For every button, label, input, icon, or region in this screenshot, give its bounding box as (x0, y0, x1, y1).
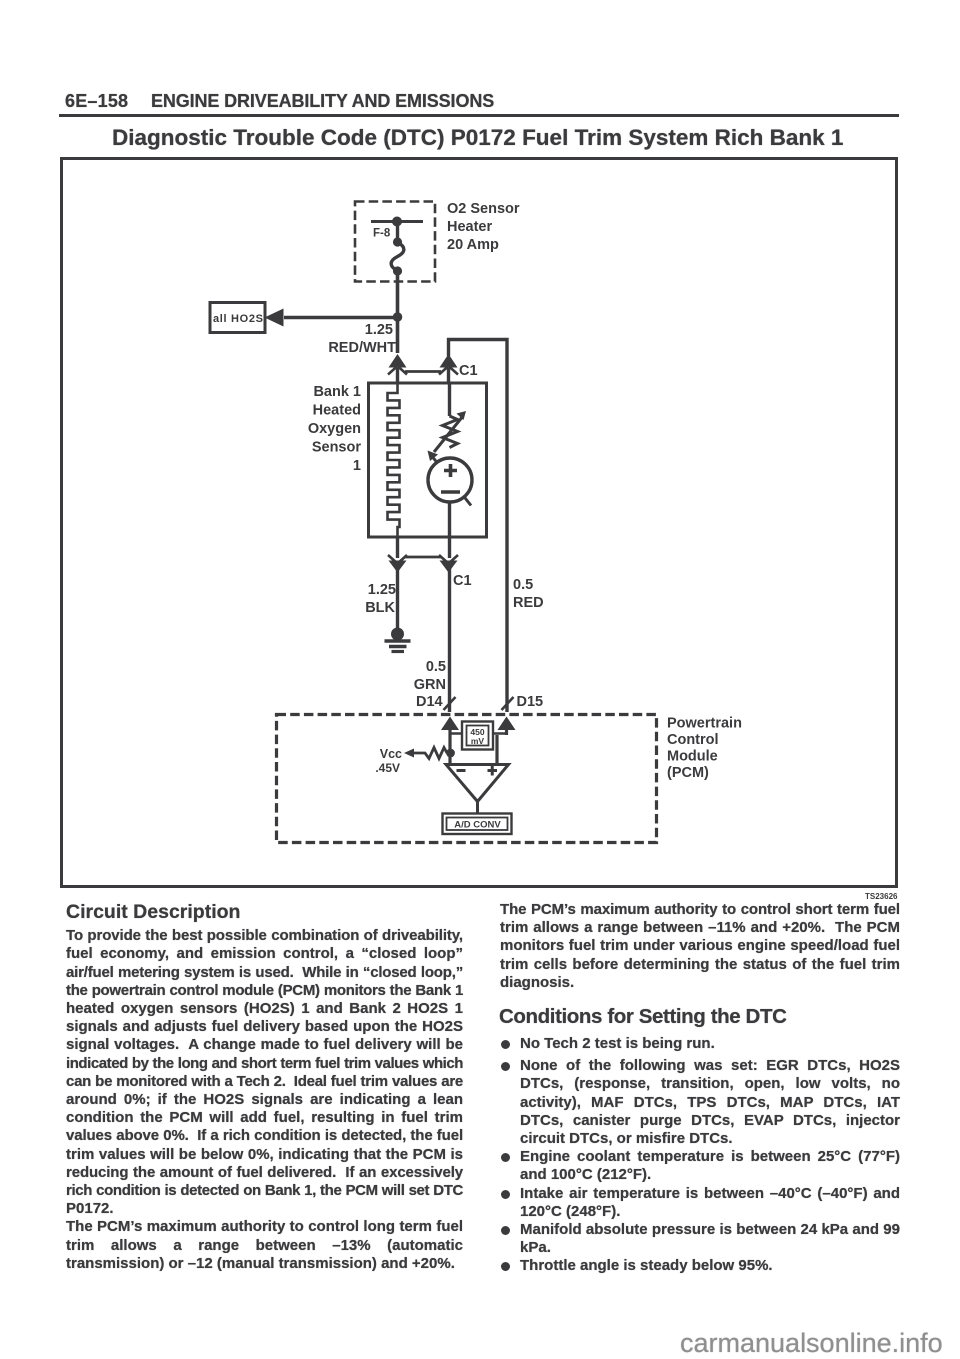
svg-text:O2 Sensor: O2 Sensor (447, 201, 520, 217)
svg-text:F-8: F-8 (373, 228, 391, 240)
svg-text:RED/WHT: RED/WHT (328, 340, 396, 356)
svg-text:D15: D15 (517, 694, 544, 710)
svg-text:C1: C1 (459, 363, 478, 379)
svg-text:Bank 1: Bank 1 (313, 384, 361, 400)
svg-text:Heated: Heated (313, 403, 361, 419)
svg-text:Powertrain: Powertrain (667, 716, 742, 732)
svg-text:1.25: 1.25 (368, 582, 396, 598)
svg-text:20 Amp: 20 Amp (447, 237, 499, 253)
svg-text:TS23626: TS23626 (865, 892, 898, 901)
svg-text:Module: Module (667, 749, 718, 765)
svg-text:Sensor: Sensor (312, 440, 362, 456)
svg-text:(PCM): (PCM) (667, 765, 709, 781)
svg-text:GRN: GRN (414, 677, 446, 693)
svg-text:all HO2S: all HO2S (213, 313, 263, 325)
svg-text:Vcc: Vcc (380, 747, 402, 761)
svg-text:1: 1 (353, 458, 361, 474)
svg-text:D14: D14 (416, 694, 443, 710)
svg-text:RED: RED (513, 595, 544, 611)
svg-text:BLK: BLK (365, 600, 395, 616)
svg-text:C1: C1 (453, 573, 472, 589)
svg-text:Oxygen: Oxygen (308, 421, 361, 437)
svg-text:0.5: 0.5 (426, 659, 446, 675)
svg-text:Control: Control (667, 732, 719, 748)
svg-text:.45V: .45V (375, 761, 400, 775)
svg-text:A/D CONV: A/D CONV (454, 820, 501, 831)
svg-text:Heater: Heater (447, 219, 492, 235)
svg-text:0.5: 0.5 (513, 577, 533, 593)
svg-text:1.25: 1.25 (365, 322, 393, 338)
svg-text:mV: mV (471, 736, 485, 746)
